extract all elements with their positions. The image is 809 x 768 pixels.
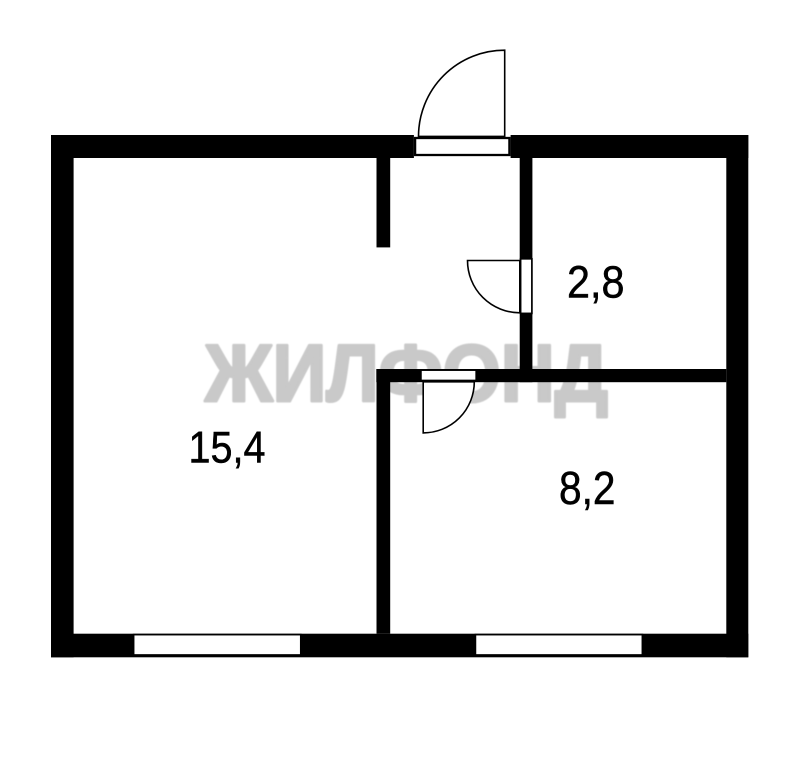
svg-text:2,8: 2,8 [567,257,625,308]
svg-text:8,2: 8,2 [559,462,616,514]
svg-text:15,4: 15,4 [189,424,266,473]
